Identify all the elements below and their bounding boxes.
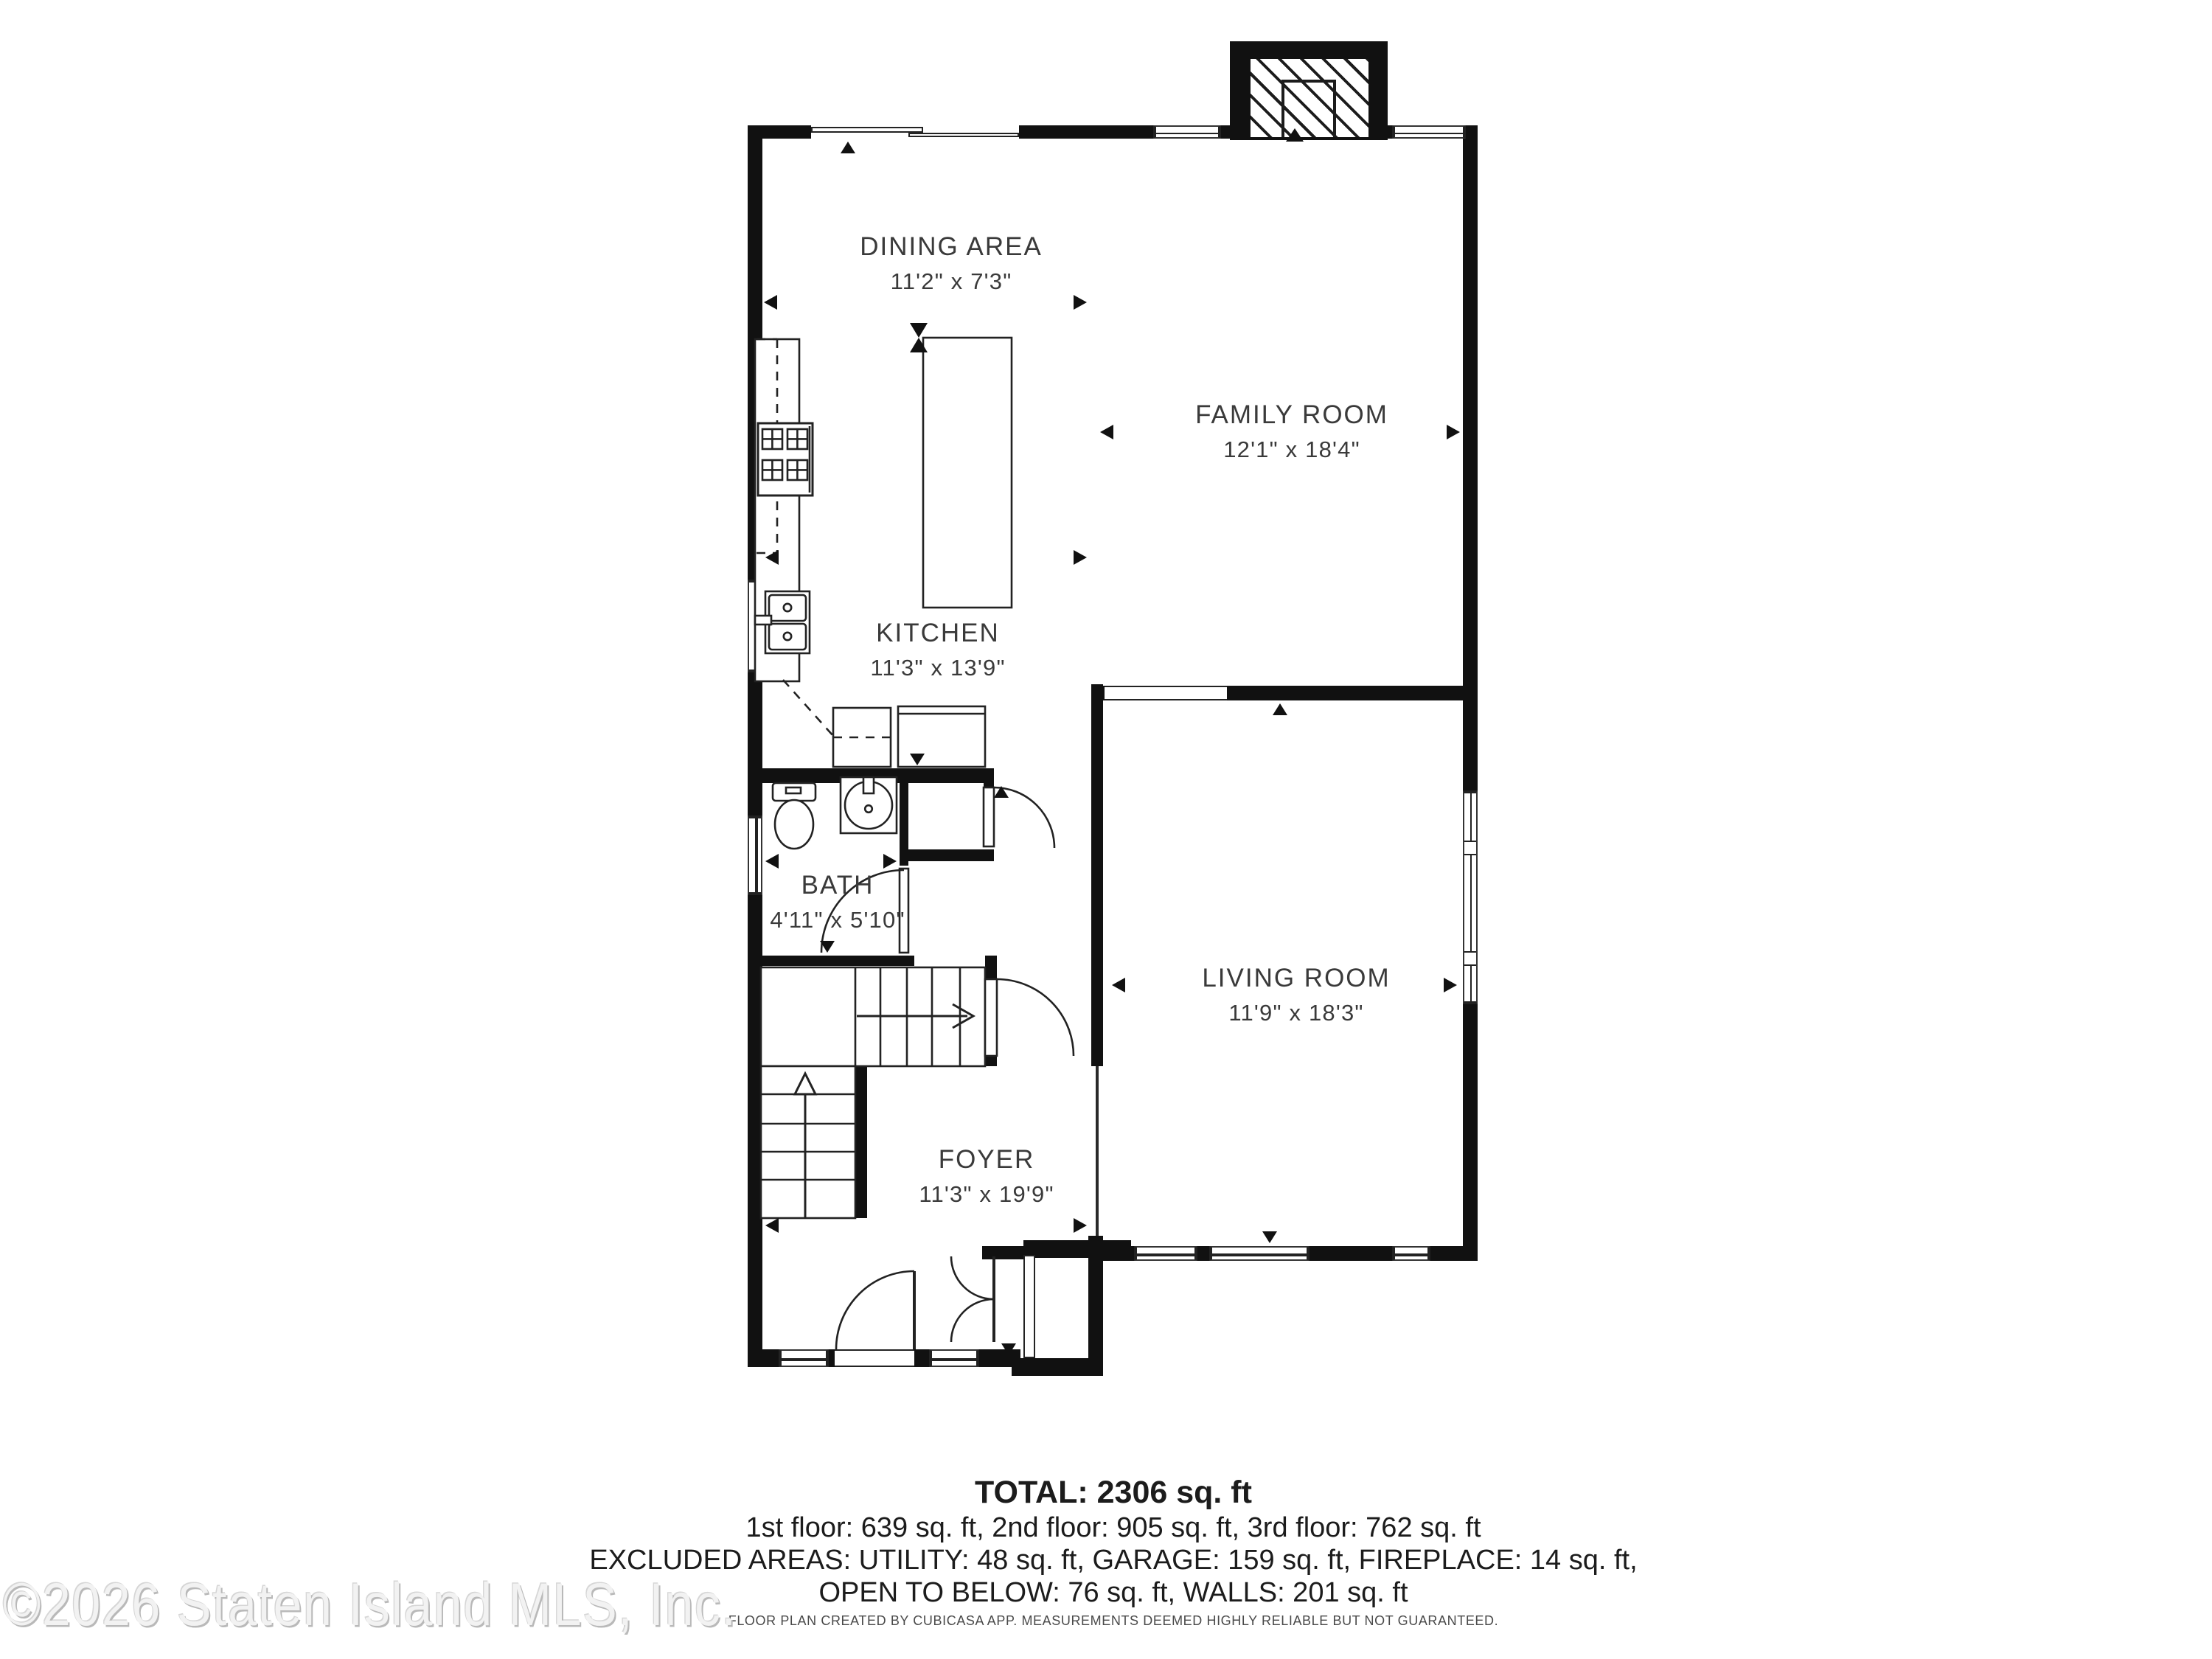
stairs-upper-flight xyxy=(761,967,985,1066)
closet-door xyxy=(984,787,1054,848)
room-label-kitchen: KITCHEN 11'3" x 13'9" xyxy=(870,618,1005,683)
room-name: LIVING ROOM xyxy=(1202,963,1390,994)
bathroom-sink-icon xyxy=(841,777,897,833)
room-name: FAMILY ROOM xyxy=(1195,400,1388,431)
room-dims: 11'3" x 13'9" xyxy=(870,656,1005,683)
stove-icon xyxy=(758,423,813,495)
room-label-dining: DINING AREA 11'2" x 7'3" xyxy=(860,232,1043,296)
refrigerator xyxy=(898,706,985,767)
stair-landing-door xyxy=(985,979,1074,1056)
room-label-bath: BATH 4'11" x 5'10" xyxy=(770,870,905,935)
toilet-icon xyxy=(773,783,815,849)
vestibule-double-doors xyxy=(951,1256,994,1342)
room-dims: 11'3" x 19'9" xyxy=(919,1183,1054,1209)
room-dims: 11'9" x 18'3" xyxy=(1202,1001,1390,1028)
floor-plan-page: DINING AREA 11'2" x 7'3" FAMILY ROOM 12'… xyxy=(0,0,2212,1659)
mls-watermark: ©2026 Staten Island MLS, Inc. xyxy=(3,1572,737,1638)
room-name: DINING AREA xyxy=(860,232,1043,262)
kitchen-island xyxy=(923,338,1012,608)
room-label-foyer: FOYER 11'3" x 19'9" xyxy=(919,1144,1054,1209)
room-dims: 4'11" x 5'10" xyxy=(770,908,905,935)
floor-areas-text: 1st floor: 639 sq. ft, 2nd floor: 905 sq… xyxy=(516,1513,1711,1545)
room-name: FOYER xyxy=(919,1144,1054,1175)
room-dims: 12'1" x 18'4" xyxy=(1195,438,1388,465)
disclaimer-text: FLOOR PLAN CREATED BY CUBICASA APP. MEAS… xyxy=(649,1613,1578,1628)
room-label-family: FAMILY ROOM 12'1" x 18'4" xyxy=(1195,400,1388,465)
front-door xyxy=(836,1271,914,1349)
room-dims: 11'2" x 7'3" xyxy=(860,270,1043,296)
room-name: KITCHEN xyxy=(870,618,1005,649)
room-name: BATH xyxy=(770,870,905,901)
room-label-living: LIVING ROOM 11'9" x 18'3" xyxy=(1202,963,1390,1028)
total-area-text: TOTAL: 2306 sq. ft xyxy=(516,1475,1711,1512)
plan-linework xyxy=(0,0,2212,1659)
stairs-lower-flight xyxy=(761,1066,855,1218)
